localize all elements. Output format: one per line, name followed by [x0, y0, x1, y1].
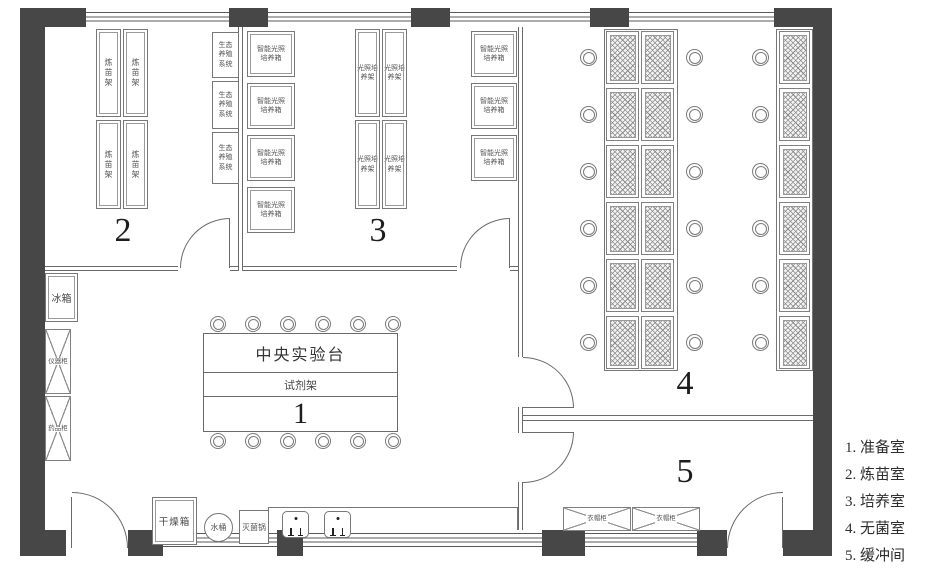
medicine-cabinet-label: 药品柜: [47, 425, 69, 432]
legend-item-2: 2. 炼苗室: [845, 463, 931, 481]
room5-number: 5: [667, 453, 703, 491]
interior-wall: [45, 266, 178, 271]
lab-stool: [350, 316, 366, 332]
drying-oven: 干燥箱: [152, 497, 197, 545]
locker-label: 衣帽柜: [586, 515, 608, 522]
stool: [752, 106, 769, 123]
wall-pier: [783, 530, 832, 556]
faucet-icon: [332, 528, 334, 536]
eco-system-unit: 生态养殖系统: [212, 81, 239, 129]
clean-bench-cell: [779, 202, 810, 255]
central-bench-title: 中央实验台: [204, 334, 397, 372]
room1-number: 1: [204, 396, 397, 431]
lab-stool: [350, 433, 366, 449]
clean-bench-cell: [606, 145, 639, 198]
clean-bench-cell: [779, 259, 810, 312]
clean-bench-cell: [779, 88, 810, 141]
seedling-rack: 炼苗架: [96, 120, 121, 209]
stool: [752, 49, 769, 66]
instrument-cabinet: 仪器柜: [45, 329, 71, 394]
faucet-icon: [300, 528, 302, 536]
lab-stool: [245, 433, 261, 449]
locker: 衣帽柜: [632, 507, 700, 531]
lab-stool: [280, 433, 296, 449]
clean-bench-cell: [641, 259, 674, 312]
sterilizer-label: 灭菌锅: [242, 522, 266, 533]
central-bench-label: 中央实验台: [255, 341, 345, 365]
door-swing: [523, 357, 574, 408]
right-wall: [813, 12, 832, 556]
clean-bench-cell: [606, 259, 639, 312]
light-culture-rack: 光照培养架: [382, 29, 407, 117]
seedling-rack: 炼苗架: [123, 120, 148, 209]
clean-bench-cell: [779, 31, 810, 84]
clean-bench-cell: [641, 31, 674, 84]
locker: 衣帽柜: [563, 507, 631, 531]
smart-incubator: 智能光照培养箱: [247, 83, 295, 129]
lab-stool: [385, 316, 401, 332]
smart-incubator: 智能光照培养箱: [247, 31, 295, 77]
stool: [580, 49, 597, 66]
faucet-icon: [342, 528, 344, 536]
smart-incubator: 智能光照培养箱: [247, 135, 295, 181]
wall-pier: [20, 530, 66, 556]
sink: [282, 511, 309, 538]
clean-bench-cell: [641, 316, 674, 369]
sink: [324, 511, 351, 538]
reagent-rack: 试剂架: [204, 372, 397, 396]
lab-stool: [245, 316, 261, 332]
door-swing: [72, 492, 128, 548]
wall-pier: [774, 8, 832, 27]
wall-pier: [229, 8, 268, 27]
clean-bench-cell: [641, 145, 674, 198]
clean-bench-cell: [606, 316, 639, 369]
stool: [580, 220, 597, 237]
stool: [752, 220, 769, 237]
eco-system-unit: 生态养殖系统: [212, 32, 239, 78]
stool: [580, 106, 597, 123]
drain-icon: [294, 517, 297, 520]
water-bucket-label: 水桶: [211, 522, 227, 533]
drain-icon: [336, 517, 339, 520]
legend-item-4: 4. 无菌室: [845, 517, 931, 535]
light-culture-rack: 光照培养架: [355, 29, 380, 117]
clean-bench-cell: [606, 88, 639, 141]
door-swing: [523, 432, 574, 483]
fridge-label: 冰箱: [52, 290, 72, 305]
reagent-rack-label: 试剂架: [284, 377, 317, 393]
wall-pier: [20, 8, 86, 27]
seedling-rack: 炼苗架: [123, 29, 148, 117]
smart-incubator: 智能光照培养箱: [471, 83, 517, 129]
lab-stool: [210, 316, 226, 332]
central-bench: 中央实验台 试剂架 1: [203, 333, 398, 432]
fridge: 冰箱: [45, 273, 78, 322]
drying-oven-label: 干燥箱: [159, 514, 191, 528]
window: [268, 12, 411, 25]
wall-pier: [590, 8, 629, 27]
stool: [580, 163, 597, 180]
interior-wall: [518, 27, 523, 357]
stool: [686, 106, 703, 123]
clean-bench-cell: [779, 145, 810, 198]
left-wall: [20, 8, 45, 556]
stool: [752, 163, 769, 180]
wall-pier: [542, 530, 585, 556]
window: [450, 12, 590, 25]
legend: 1. 准备室 2. 炼苗室 3. 培养室 4. 无菌室 5. 缓冲间: [845, 436, 931, 571]
sterilizer: 灭菌锅: [239, 510, 269, 544]
eco-system-unit: 生态养殖系统: [212, 132, 239, 184]
stool: [580, 277, 597, 294]
lab-stool: [315, 433, 331, 449]
interior-wall: [230, 266, 457, 271]
floor-plan: 2 3 4 5 冰箱 仪器柜 药品柜 中央实验台 试剂架 1 干燥箱 水桶 灭菌…: [0, 0, 931, 577]
room3-number: 3: [360, 212, 396, 250]
window: [585, 533, 697, 547]
light-culture-rack: 光照培养架: [382, 120, 407, 209]
interior-wall: [518, 482, 523, 530]
seedling-rack: 炼苗架: [96, 29, 121, 117]
lab-stool: [210, 433, 226, 449]
locker-label: 衣帽柜: [655, 515, 677, 522]
stool: [686, 277, 703, 294]
clean-bench-cell: [606, 31, 639, 84]
water-bucket: 水桶: [204, 513, 233, 542]
light-culture-rack: 光照培养架: [355, 120, 380, 209]
door-swing: [180, 218, 230, 268]
lab-stool: [280, 316, 296, 332]
smart-incubator: 智能光照培养箱: [471, 135, 517, 181]
lab-stool: [385, 433, 401, 449]
clean-bench-cell: [641, 88, 674, 141]
faucet-icon: [290, 528, 292, 536]
door-swing: [727, 492, 783, 548]
wall-pier: [697, 530, 727, 556]
door-swing: [460, 218, 510, 268]
stool: [686, 220, 703, 237]
stool: [686, 163, 703, 180]
wall-pier: [411, 8, 450, 27]
legend-item-1: 1. 准备室: [845, 436, 931, 454]
medicine-cabinet: 药品柜: [45, 396, 71, 461]
lab-stool: [315, 316, 331, 332]
stool: [752, 334, 769, 351]
legend-item-3: 3. 培养室: [845, 490, 931, 508]
smart-incubator: 智能光照培养箱: [471, 31, 517, 77]
legend-item-5: 5. 缓冲间: [845, 544, 931, 562]
interior-wall: [523, 415, 813, 421]
window: [629, 12, 774, 25]
room2-number: 2: [105, 212, 141, 250]
clean-bench-cell: [606, 202, 639, 255]
stool: [686, 334, 703, 351]
stool: [686, 49, 703, 66]
instrument-cabinet-label: 仪器柜: [47, 358, 69, 365]
clean-bench-cell: [779, 316, 810, 369]
stool: [752, 277, 769, 294]
smart-incubator: 智能光照培养箱: [247, 187, 295, 233]
stool: [580, 334, 597, 351]
clean-bench-cell: [641, 202, 674, 255]
window: [86, 12, 229, 25]
